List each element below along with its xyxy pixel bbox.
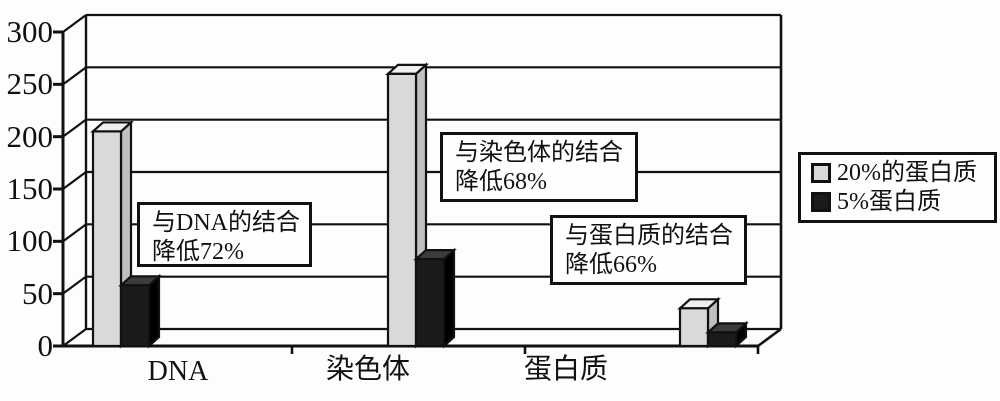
left-wall-edge	[63, 67, 86, 84]
x-axis-label-dna: DNA	[128, 357, 228, 387]
bar-side-face	[149, 276, 159, 346]
annotation-chromosome: 与染色体的结合 降低68%	[440, 132, 638, 202]
bar-front-face	[93, 131, 121, 346]
x-axis-label-protein: 蛋白质	[506, 355, 626, 385]
annotation-protein: 与蛋白质的结合 降低66%	[550, 215, 747, 285]
y-axis-tick-label: 0	[1, 330, 53, 362]
legend-swatch-gray	[811, 163, 831, 183]
y-axis-tick-label: 250	[1, 68, 53, 100]
y-axis-tick-label: 300	[1, 16, 53, 48]
y-axis-tick-label: 50	[1, 278, 53, 310]
y-axis-tick-label: 200	[1, 121, 53, 153]
bar-side-face	[444, 250, 454, 346]
left-wall-edge	[63, 277, 86, 294]
annotation-protein-line1: 与蛋白质的结合	[565, 222, 734, 251]
bar-front-face	[708, 332, 736, 346]
legend-label-5pct: 5%蛋白质	[837, 189, 941, 215]
y-axis-tick-label: 100	[1, 225, 53, 257]
bar-front-face	[416, 259, 444, 346]
left-wall-edge	[63, 224, 86, 241]
left-wall-edge	[63, 15, 86, 32]
chart-figure: 300250200150100500 DNA 染色体 蛋白质 与DNA的结合 降…	[0, 0, 1000, 401]
left-wall-edge	[63, 120, 86, 137]
annotation-dna-line2: 降低72%	[152, 238, 299, 267]
legend-label-20pct: 20%的蛋白质	[837, 160, 977, 186]
annotation-chromosome-line1: 与染色体的结合	[455, 139, 625, 168]
left-wall-edge	[63, 329, 86, 346]
annotation-dna-line1: 与DNA的结合	[152, 209, 299, 238]
legend-entry-20pct: 20%的蛋白质	[811, 160, 994, 186]
left-wall-edge	[63, 172, 86, 189]
bar-front-face	[388, 74, 416, 346]
x-axis-label-chromosome: 染色体	[308, 355, 428, 385]
annotation-chromosome-line2: 降低68%	[455, 168, 625, 197]
annotation-dna: 与DNA的结合 降低72%	[137, 202, 312, 267]
y-axis-tick-label: 150	[1, 173, 53, 205]
legend-box: 20%的蛋白质 5%蛋白质	[798, 152, 997, 223]
annotation-protein-line2: 降低66%	[565, 251, 734, 280]
floor-right-edge	[758, 329, 781, 346]
legend-entry-5pct: 5%蛋白质	[811, 189, 994, 215]
bar-front-face	[680, 308, 708, 346]
legend-swatch-black	[811, 192, 831, 212]
bar-front-face	[121, 285, 149, 346]
